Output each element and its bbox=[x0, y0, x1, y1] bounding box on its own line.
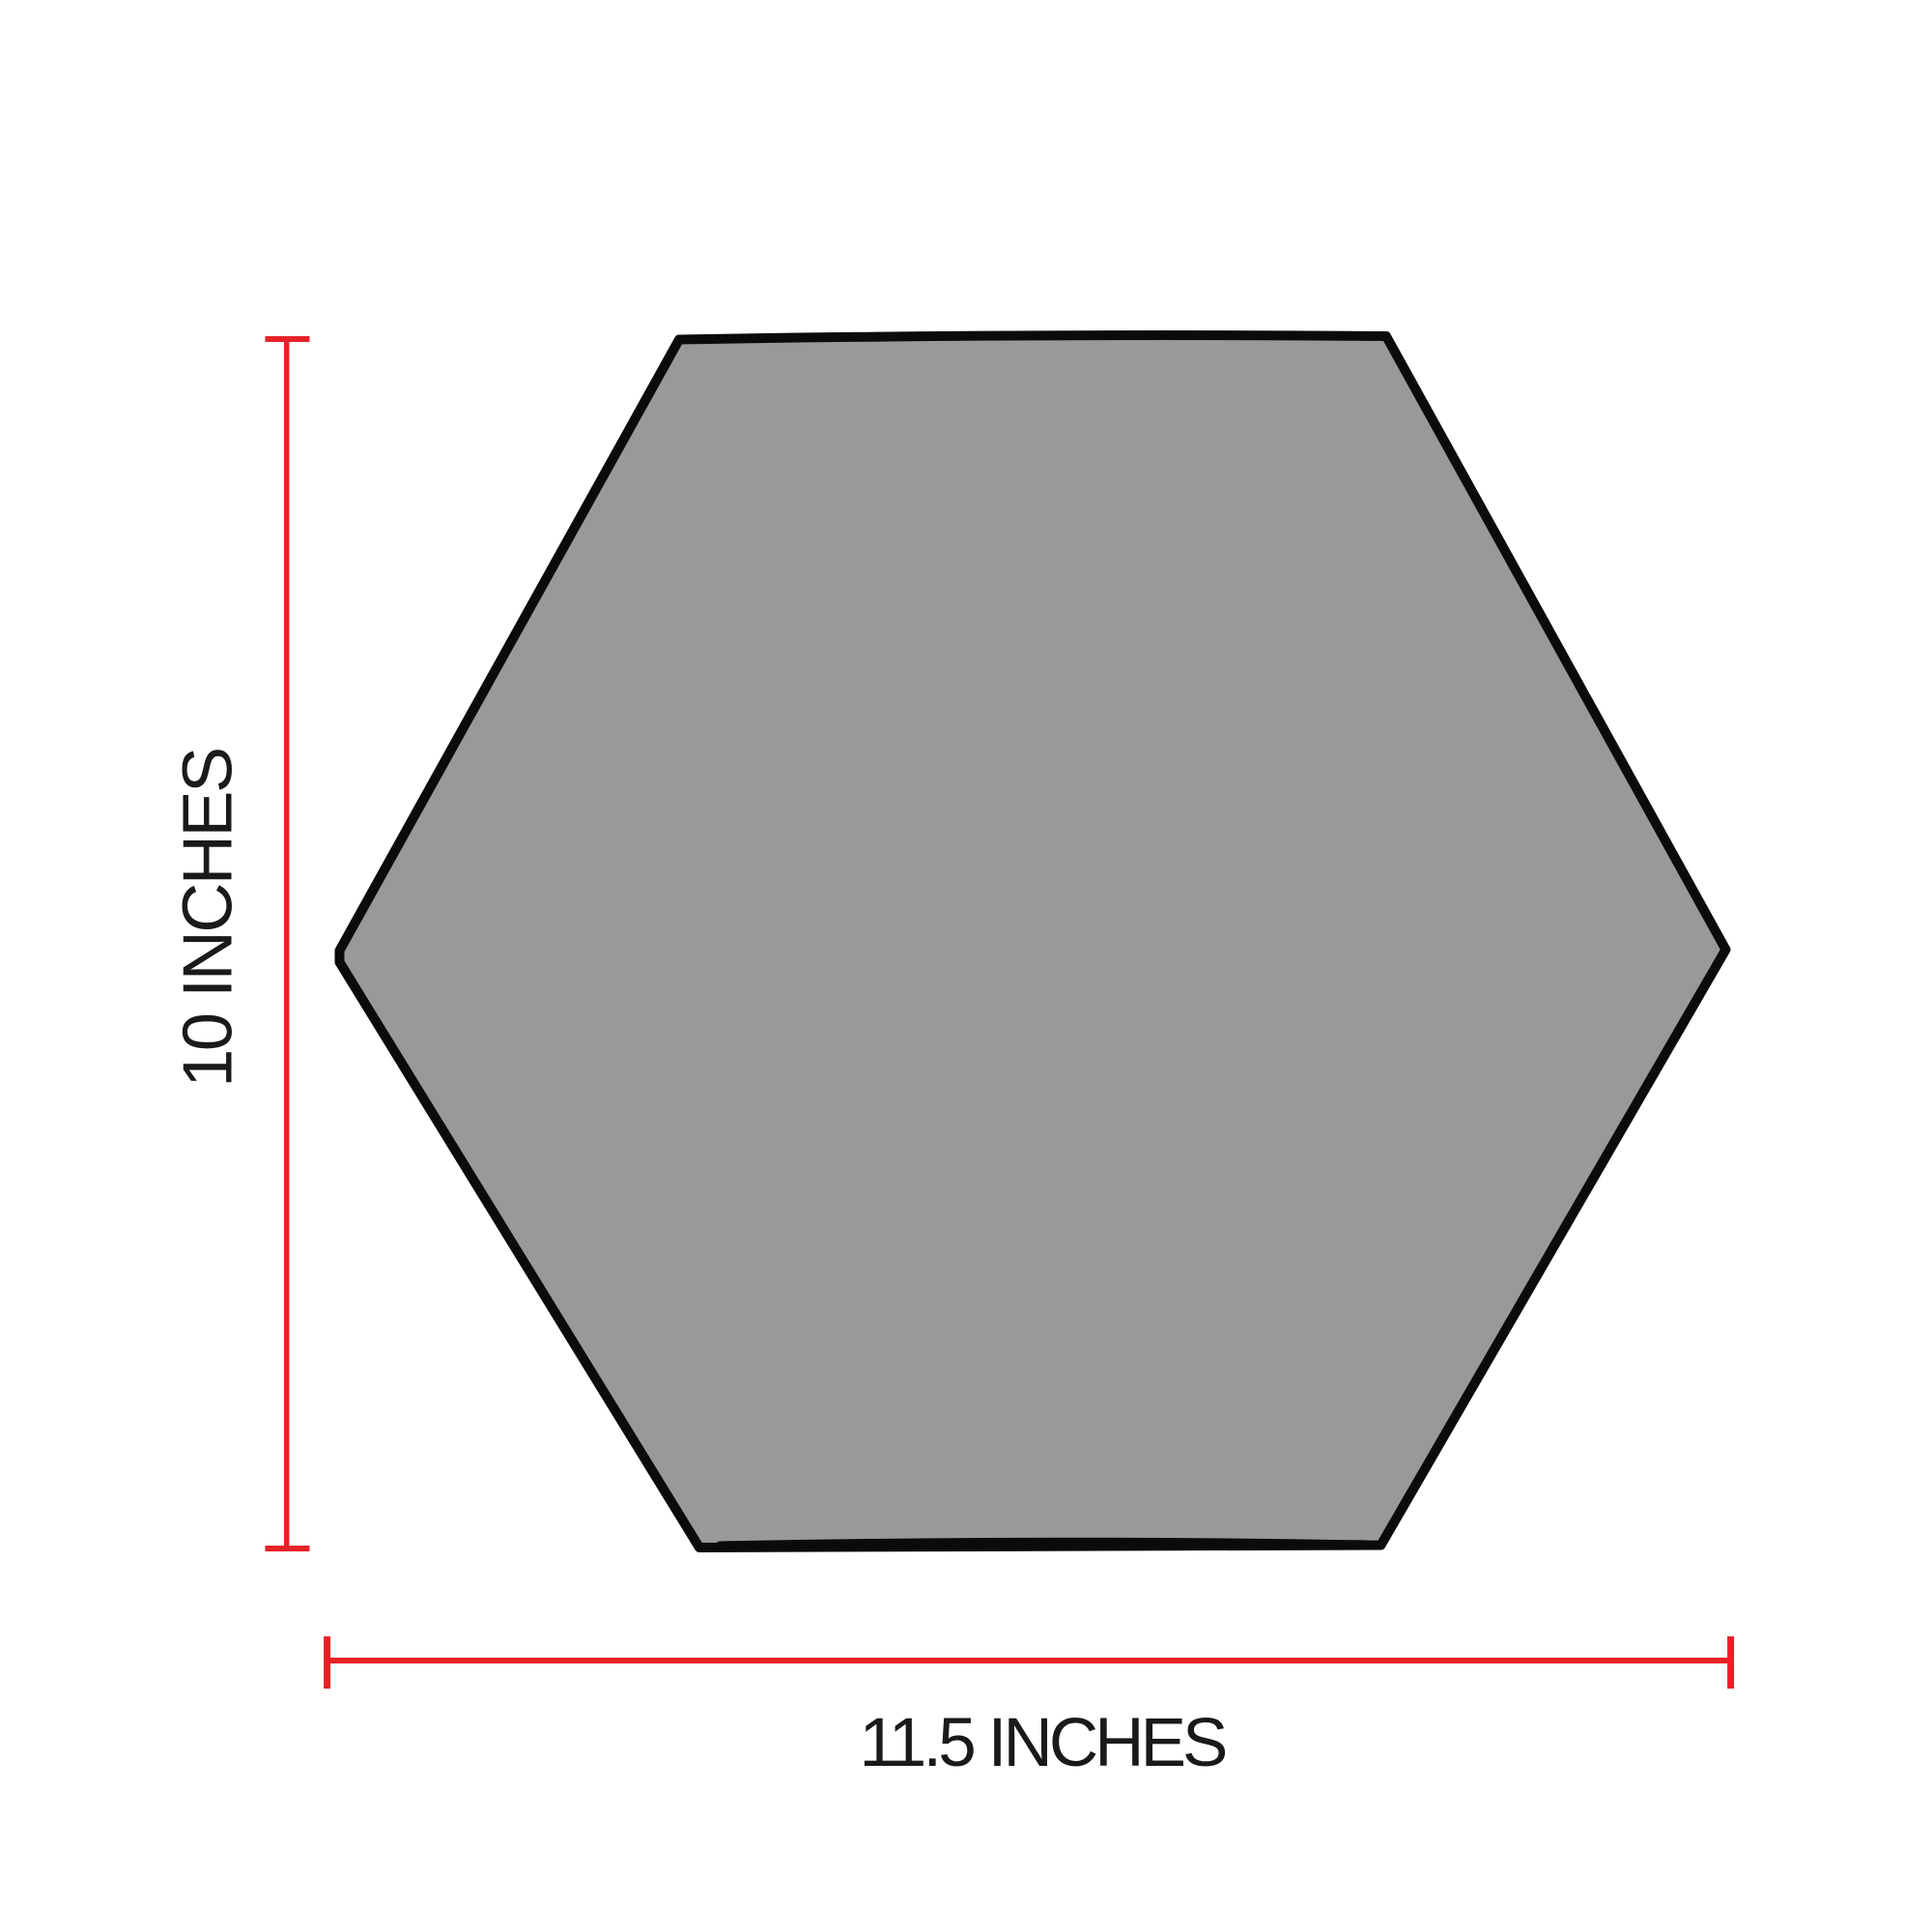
svg-text:11.5 INCHES: 11.5 INCHES bbox=[859, 1705, 1226, 1781]
svg-text:10 INCHES: 10 INCHES bbox=[170, 749, 247, 1088]
